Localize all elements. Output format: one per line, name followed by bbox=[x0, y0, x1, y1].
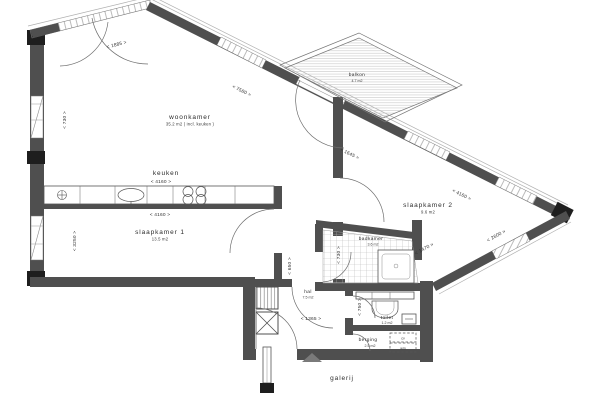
room-label-woonkamer: woonkamer bbox=[168, 114, 211, 121]
dim-hal-width: < 1365 > bbox=[301, 316, 322, 322]
wall-berging-left-upper bbox=[345, 331, 353, 335]
wall-toilet-left-lower bbox=[345, 318, 353, 325]
dim-slaapkamer1-depth: < 3250 > bbox=[72, 231, 78, 252]
window-facade-1 bbox=[217, 37, 266, 68]
dim-slaapkamer2-width: < 4160 > bbox=[451, 188, 472, 203]
shower-tray bbox=[378, 250, 414, 283]
wall-slk2-left-upper bbox=[333, 97, 343, 178]
dim-facade-diagonal: < 7580 > bbox=[231, 84, 252, 99]
room-label-keuken: keuken bbox=[153, 170, 179, 177]
window-left-lower bbox=[31, 216, 43, 260]
door-arc-slaapkamer1 bbox=[230, 209, 274, 253]
entrance-screen bbox=[260, 347, 274, 393]
window-left-upper bbox=[31, 96, 43, 138]
outer-walls bbox=[27, 0, 574, 362]
installation-shaft bbox=[256, 312, 278, 334]
kitchen-counter bbox=[44, 186, 274, 205]
dim-passage: < 650 > bbox=[287, 257, 293, 275]
room-label-slaapkamer2: slaapkamer 2 bbox=[403, 202, 453, 209]
wall-slk1-right-bottom bbox=[274, 253, 282, 283]
toilet-cistern bbox=[356, 292, 414, 299]
dim-toilet-depth: < 750 > bbox=[357, 298, 363, 316]
room-area-slaapkamer2: 9.6 m2 bbox=[421, 210, 435, 215]
room-area-berging: 2.5 m2 bbox=[365, 344, 376, 348]
room-label-galerij: galerij bbox=[330, 375, 354, 382]
dim-keuken-width-bottom: < 4160 > bbox=[150, 212, 171, 218]
room-area-badkamer: 3.6 m2 bbox=[368, 243, 379, 247]
room-label-badkamer: badkamer bbox=[359, 236, 384, 242]
column-left-mid bbox=[27, 151, 45, 164]
floor-plan: woonkamer 35.2 m2 ( incl. keuken ) keuke… bbox=[0, 0, 600, 400]
room-area-slaapkamer1: 13.5 m2 bbox=[152, 237, 169, 242]
wall-hal-top-left bbox=[255, 279, 292, 287]
door-arc-balcony-left-2 bbox=[92, 18, 148, 64]
appliance-label-cv: cv bbox=[401, 337, 405, 341]
room-area-balkon: 4.7 m2 bbox=[352, 79, 363, 83]
dim-slaapkamer2-side: < 2600 > bbox=[486, 229, 507, 244]
wall-toilet-left-upper bbox=[345, 291, 353, 296]
room-area-woonkamer: 35.2 m2 ( incl. keuken ) bbox=[166, 122, 215, 127]
wall-hal-left bbox=[243, 281, 255, 360]
balcony-deck-hatch bbox=[285, 38, 457, 118]
door-arc-slaapkamer2 bbox=[340, 178, 384, 222]
room-area-hal: 7.5 m2 bbox=[303, 296, 314, 300]
wall-berging-left-lower bbox=[345, 349, 353, 352]
wall-slaapkamer1-bottom bbox=[30, 277, 255, 287]
tap-icon bbox=[58, 191, 67, 200]
entrance-screen-column bbox=[260, 383, 274, 393]
meter-cabinet bbox=[256, 287, 278, 309]
balcony bbox=[280, 33, 462, 122]
window-facade-3 bbox=[495, 177, 537, 204]
wall-toilet-berging-divider bbox=[345, 325, 420, 331]
room-label-hal: hal bbox=[304, 289, 312, 295]
room-area-toilet: 1.2 m2 bbox=[382, 321, 393, 325]
room-label-balkon: balkon bbox=[349, 72, 366, 78]
room-label-berging: berging bbox=[359, 337, 378, 343]
room-labels: woonkamer 35.2 m2 ( incl. keuken ) keuke… bbox=[135, 72, 453, 382]
dim-left-wall-upper: < 730 > bbox=[62, 111, 68, 129]
interior-walls bbox=[44, 97, 422, 352]
dim-balcony-doors: < 1885 > bbox=[106, 40, 127, 51]
dim-badkamer-depth: < 730 > bbox=[336, 246, 342, 264]
wall-slk1-right-top bbox=[274, 186, 282, 209]
appliance-label-wm: wm bbox=[400, 347, 406, 351]
wall-top-left-diagonal bbox=[30, 0, 150, 38]
wall-toilet-top bbox=[315, 283, 420, 291]
wall-badkamer-left bbox=[315, 224, 323, 252]
room-label-slaapkamer1: slaapkamer 1 bbox=[135, 229, 185, 236]
dim-keuken-width-top: < 4160 > bbox=[151, 179, 172, 185]
